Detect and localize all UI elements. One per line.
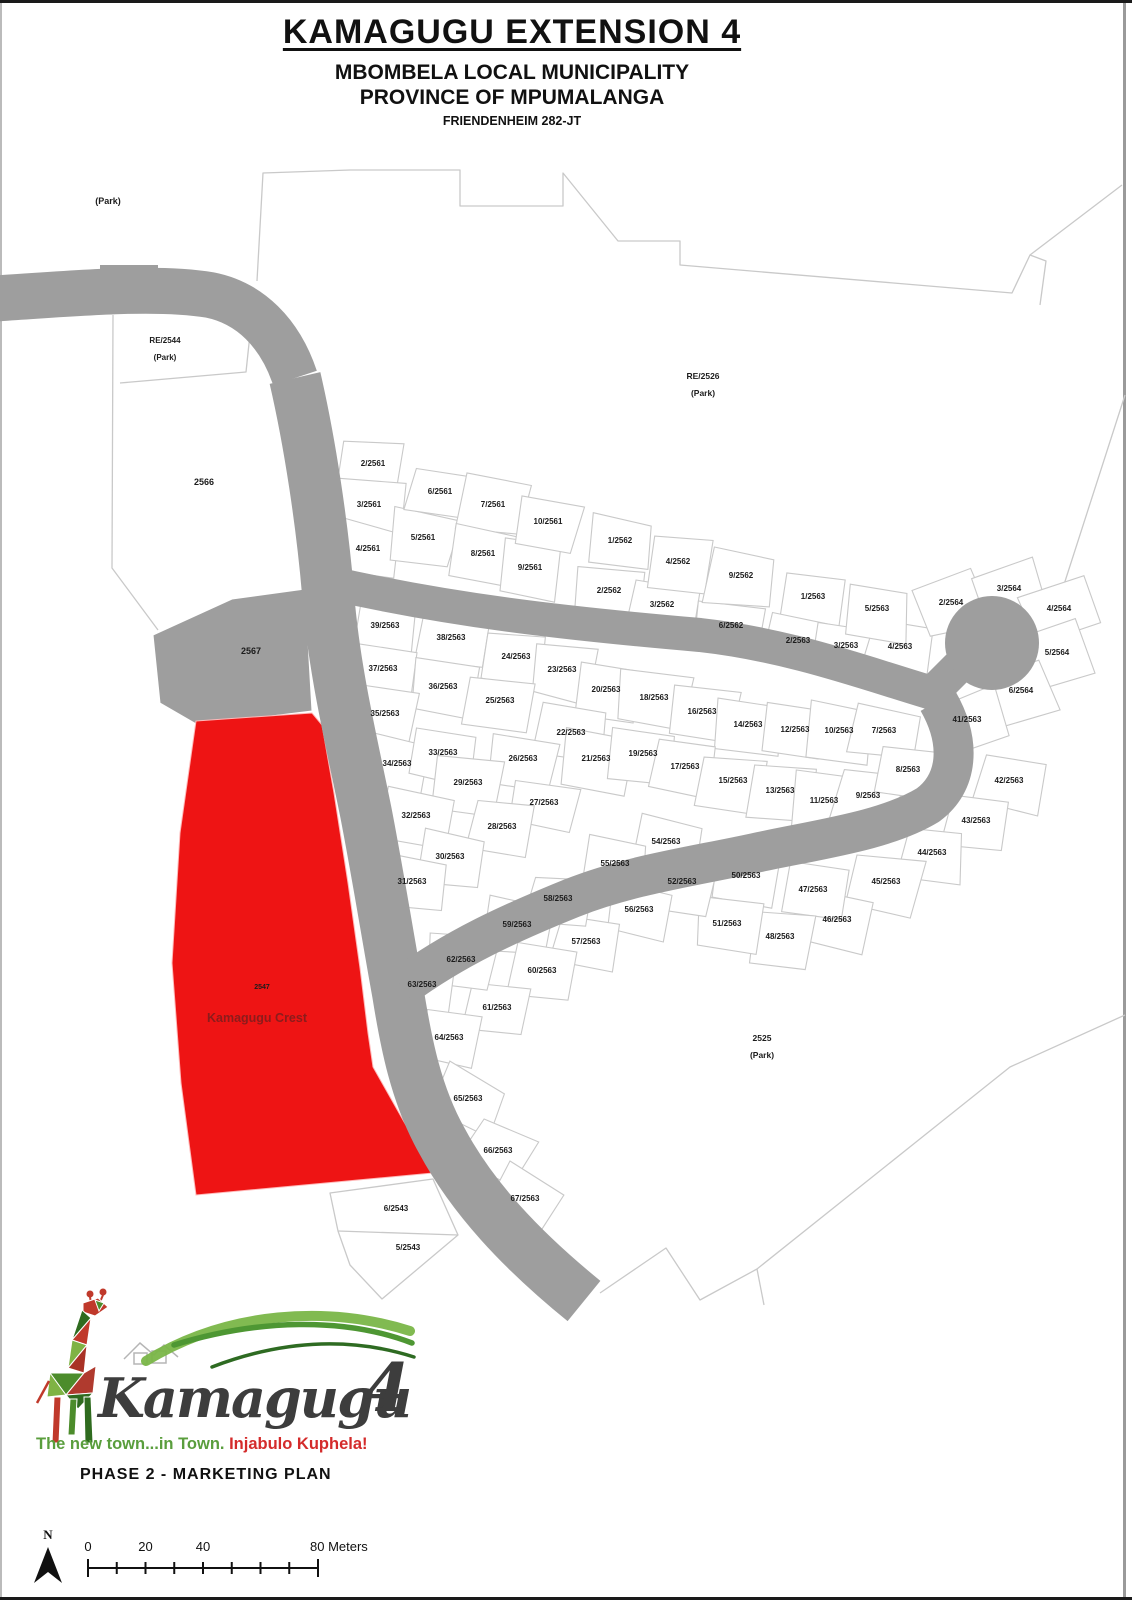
north-label: N [43, 1527, 53, 1542]
parcel-label: 59/2563 [503, 920, 532, 929]
parcel-label: 3/2564 [997, 584, 1022, 593]
parcel-label: 46/2563 [823, 915, 852, 924]
parcel-label: 4/2563 [888, 642, 913, 651]
parcel-label: 8/2561 [471, 549, 496, 558]
area-label: (Park) [154, 353, 177, 362]
parcel-label: 27/2563 [530, 798, 559, 807]
parcel-label: 44/2563 [918, 848, 947, 857]
parcel-label: 65/2563 [454, 1094, 483, 1103]
parcel-label: 43/2563 [962, 816, 991, 825]
parcel-label: 4/2561 [356, 544, 381, 553]
parcel-label: 2/2564 [939, 598, 964, 607]
title-block: KAMAGUGU EXTENSION 4 MBOMBELA LOCAL MUNI… [0, 13, 1024, 128]
parcel-label: 61/2563 [483, 1003, 512, 1012]
parcel-label: 19/2563 [629, 749, 658, 758]
farm-subtitle: FRIENDENHEIM 282-JT [0, 114, 1024, 128]
parcel-label: 3/2561 [357, 500, 382, 509]
parcel-label: 6/2561 [428, 487, 453, 496]
parcel-label: 5/2561 [411, 533, 436, 542]
parcel-label: 63/2563 [408, 980, 437, 989]
parcel-label: 54/2563 [652, 837, 681, 846]
park-boundary-notch [1030, 255, 1046, 305]
plan-title: PHASE 2 - MARKETING PLAN [80, 1466, 332, 1484]
parcel-2566-west [112, 315, 158, 630]
parcel-label: 13/2563 [766, 786, 795, 795]
parcel-label: 39/2563 [371, 621, 400, 630]
parcel-label: 18/2563 [640, 693, 669, 702]
scale-80: 80 Meters [310, 1539, 368, 1554]
parcel-label: 64/2563 [435, 1033, 464, 1042]
parcel-label: 12/2563 [781, 725, 810, 734]
tagline-green: The new town...in Town. [36, 1435, 229, 1453]
area-label: Kamagugu Crest [207, 1011, 308, 1025]
parcel-label: 55/2563 [601, 859, 630, 868]
scale-0: 0 [84, 1539, 91, 1554]
parcel-label: 57/2563 [572, 937, 601, 946]
area-label: RE/2544 [149, 336, 181, 345]
parcel-label: 5/2543 [396, 1243, 421, 1252]
parcel-label: 30/2563 [436, 852, 465, 861]
parcel-label: 2/2561 [361, 459, 386, 468]
parcel-label: 15/2563 [719, 776, 748, 785]
parcel-label: 9/2561 [518, 563, 543, 572]
parcel-label: 3/2562 [650, 600, 675, 609]
parcel-label: 21/2563 [582, 754, 611, 763]
parcel-label: 2/2562 [597, 586, 622, 595]
plan-page: 2/25613/25614/25615/25616/25617/25618/25… [0, 0, 1132, 1600]
logo-graphic: Kamagugu 4 [28, 1285, 428, 1450]
area-label: (Park) [95, 196, 121, 206]
parcel-2567-area [153, 589, 312, 725]
parcel-label: 4/2562 [666, 557, 691, 566]
parcel-label: 22/2563 [557, 728, 586, 737]
parcel-label: 67/2563 [511, 1194, 540, 1203]
parcel-label: 9/2563 [856, 791, 881, 800]
parcels-2543-divider [338, 1231, 458, 1235]
parcel-label: 10/2561 [534, 517, 563, 526]
parcel-label: 36/2563 [429, 682, 458, 691]
parcel-label: 1/2563 [801, 592, 826, 601]
parcel-label: 41/2563 [953, 715, 982, 724]
parcel-label: 42/2563 [995, 776, 1024, 785]
municipality-subtitle: MBOMBELA LOCAL MUNICIPALITY [0, 61, 1024, 85]
parcel-label: 37/2563 [369, 664, 398, 673]
parcel-label: 2/2563 [786, 636, 811, 645]
parcel-label: 17/2563 [671, 762, 700, 771]
parcel-label: 62/2563 [447, 955, 476, 964]
scale-40: 40 [196, 1539, 210, 1554]
kamagugu-logo: Kamagugu 4 [28, 1285, 428, 1460]
parcel-label: 56/2563 [625, 905, 654, 914]
area-label: (Park) [691, 388, 715, 398]
parcel-label: 31/2563 [398, 877, 427, 886]
parcel-label: 26/2563 [509, 754, 538, 763]
parcel-label: 7/2561 [481, 500, 506, 509]
boundary-southeast-spur [757, 1269, 764, 1305]
parcel-label: 66/2563 [484, 1146, 513, 1155]
cul-de-sac [945, 596, 1039, 690]
scale-bar: 0 20 40 80 Meters [70, 1535, 400, 1583]
parcel-label: 10/2563 [825, 726, 854, 735]
area-label: 2547 [254, 984, 270, 991]
parcel-label: 6/2543 [384, 1204, 409, 1213]
parcel-label: 45/2563 [872, 877, 901, 886]
parcel-label: 7/2563 [872, 726, 897, 735]
parcel-label: 48/2563 [766, 932, 795, 941]
boundary-southeast [600, 1015, 1125, 1300]
logo-tagline: The new town...in Town. Injabulo Kuphela… [36, 1435, 436, 1454]
parcel-label: 47/2563 [799, 885, 828, 894]
parcel-label: 23/2563 [548, 665, 577, 674]
parcel-label: 34/2563 [383, 759, 412, 768]
parcel-label: 28/2563 [488, 822, 517, 831]
area-label: 2566 [194, 477, 214, 487]
area-label: (Park) [750, 1050, 774, 1060]
parcel-label: 25/2563 [486, 696, 515, 705]
parcel-outline [846, 584, 907, 644]
parcel-label: 3/2563 [834, 641, 859, 650]
parcel-label: 9/2562 [729, 571, 754, 580]
parcel-label: 58/2563 [544, 894, 573, 903]
parcel-label: 38/2563 [437, 633, 466, 642]
tagline-red: Injabulo Kuphela! [229, 1435, 367, 1453]
logo-number: 4 [364, 1349, 410, 1427]
parcel-label: 50/2563 [732, 871, 761, 880]
park-boundary-north [257, 170, 1122, 293]
parcel-label: 29/2563 [454, 778, 483, 787]
logo-wordmark: Kamagugu [96, 1366, 410, 1430]
map-title: KAMAGUGU EXTENSION 4 [0, 13, 1024, 52]
parcel-outline [462, 677, 536, 733]
area-label: 2567 [241, 646, 261, 656]
parcel-label: 24/2563 [502, 652, 531, 661]
area-label: 2525 [753, 1033, 772, 1043]
parcel-label: 5/2564 [1045, 648, 1070, 657]
parcel-label: 33/2563 [429, 748, 458, 757]
parcel-label: 11/2563 [810, 796, 839, 805]
parcel-label: 35/2563 [371, 709, 400, 718]
parcel-label: 8/2563 [896, 765, 921, 774]
area-label: RE/2526 [686, 371, 719, 381]
north-arrow-icon [34, 1547, 62, 1583]
parcel-label: 52/2563 [668, 877, 697, 886]
scale-20: 20 [138, 1539, 152, 1554]
parcel-label: 4/2564 [1047, 604, 1072, 613]
road-entry-west [0, 291, 295, 378]
parcel-label: 6/2564 [1009, 686, 1034, 695]
parcel-label: 6/2562 [719, 621, 744, 630]
parcel-label: 5/2563 [865, 604, 890, 613]
parcel-label: 20/2563 [592, 685, 621, 694]
parcel-label: 60/2563 [528, 966, 557, 975]
province-subtitle: PROVINCE OF MPUMALANGA [0, 86, 1024, 110]
parcel-label: 51/2563 [713, 919, 742, 928]
parcel-label: 16/2563 [688, 707, 717, 716]
parcel-label: 1/2562 [608, 536, 633, 545]
parcels-2543-outline [330, 1179, 458, 1299]
parcel-label: 32/2563 [402, 811, 431, 820]
parcel-label: 14/2563 [734, 720, 763, 729]
